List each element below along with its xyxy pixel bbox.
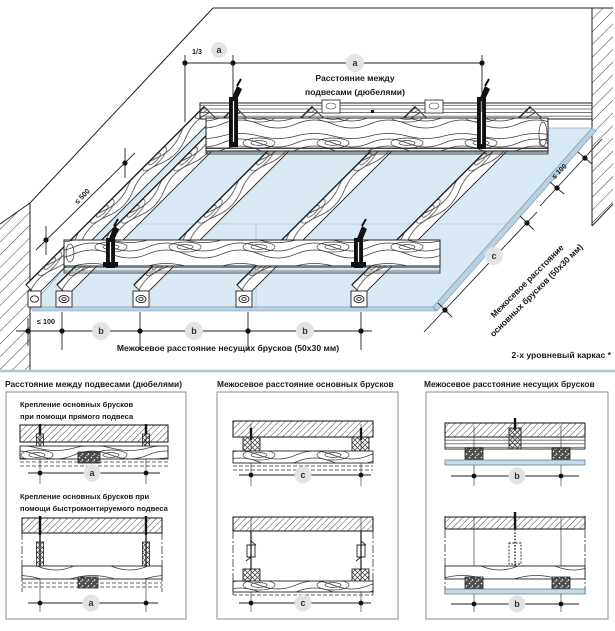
panel-carrier-bars-spacing: Межосевое расстояние несущих брусков b: [424, 379, 608, 619]
a-caption-line2: подвесами (дюбелями): [305, 87, 405, 97]
panel1-caption1-line2: при помощи прямого подвеса: [20, 412, 134, 421]
fraction-label: 1/3: [192, 47, 202, 56]
right-wall-section: [592, 8, 613, 226]
a-caption-line1: Расстояние между: [315, 73, 395, 83]
footnote: 2-х уровневый каркас *: [512, 350, 612, 360]
panel2-title: Межосевое расстояние основных брусков: [217, 379, 394, 389]
panel2-dim2-label: c: [300, 598, 305, 608]
panel3-dim1-label: b: [514, 471, 520, 481]
panel2-dim1-label: c: [300, 470, 305, 480]
ceiling-framework-diagram: 1/3 a a Расстояние между подвесами (дюбе…: [0, 0, 615, 631]
panel-main-bars-spacing: Межосевое расстояние основных брусков c: [217, 379, 398, 619]
panel-hangers-distance: Расстояние между подвесами (дюбелями) Кр…: [5, 379, 186, 619]
marker-c-label: c: [491, 251, 496, 261]
panel1-caption2-line2: помощи быстромонтируемого подвеса: [20, 504, 169, 513]
marker-b1-label: b: [98, 326, 104, 336]
marker-b2-label: b: [191, 326, 197, 336]
isometric-view: 1/3 a a Расстояние между подвесами (дюбе…: [0, 8, 613, 372]
panel1-title: Расстояние между подвесами (дюбелями): [5, 379, 182, 389]
le500-label: ≤ 500: [73, 187, 92, 206]
panel1-caption2-line1: Крепление основных брусков при: [20, 492, 150, 501]
panel3-title: Межосевое расстояние несущих брусков: [424, 379, 595, 389]
panel3-dim2-label: b: [514, 599, 520, 609]
marker-b3-label: b: [302, 326, 308, 336]
le100-left-label: ≤ 100: [37, 317, 55, 326]
panel1-caption1-line1: Крепление основных брусков: [20, 400, 134, 409]
b-caption: Межосевое расстояние несущих брусков (50…: [117, 343, 339, 353]
diagram-canvas: 1/3 a a Расстояние между подвесами (дюбе…: [0, 0, 615, 631]
